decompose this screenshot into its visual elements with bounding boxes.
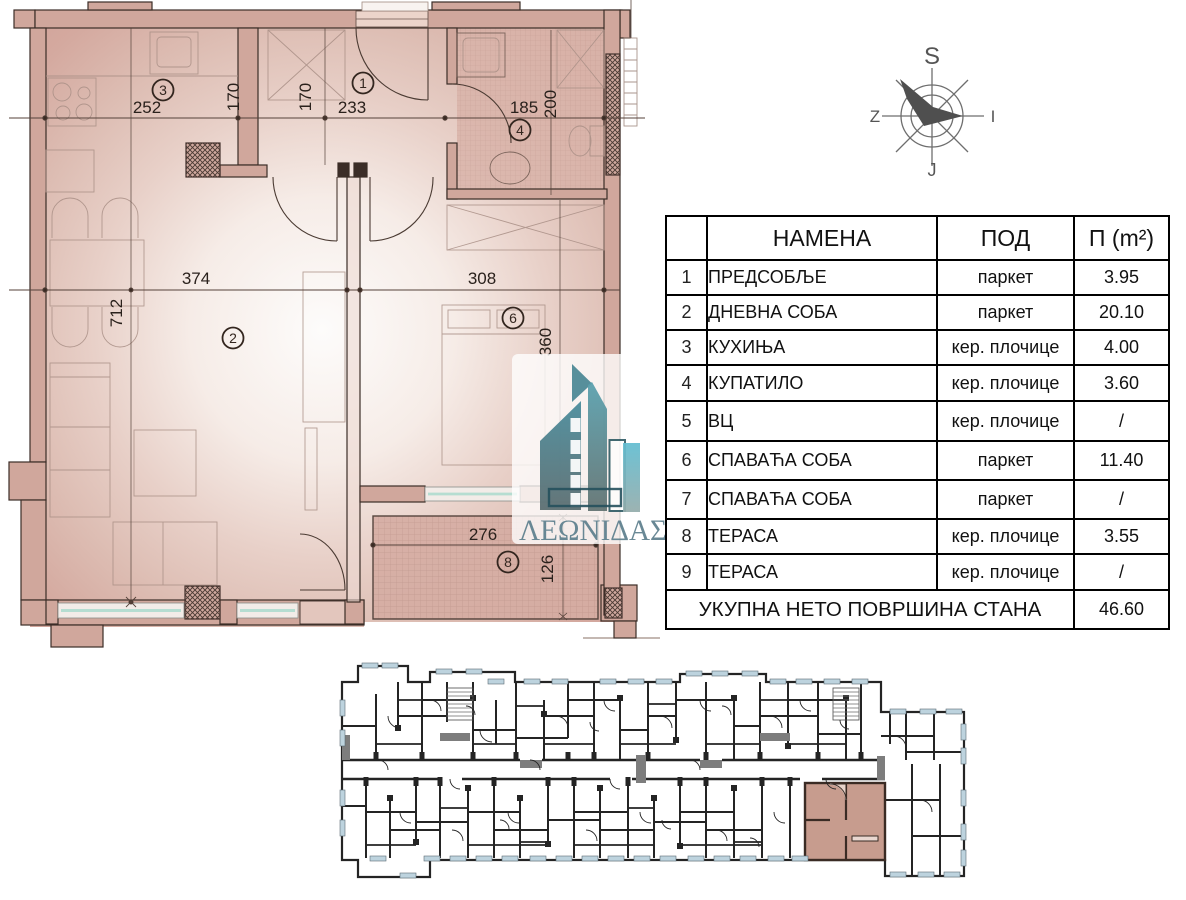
svg-text:185: 185 <box>510 98 538 117</box>
svg-text:I: I <box>991 107 996 126</box>
svg-text:8: 8 <box>504 554 512 570</box>
svg-text:6: 6 <box>509 310 517 326</box>
svg-text:3: 3 <box>159 82 167 98</box>
svg-text:252: 252 <box>133 98 161 117</box>
svg-text:200: 200 <box>541 90 560 118</box>
svg-text:233: 233 <box>338 98 366 117</box>
svg-text:374: 374 <box>182 269 210 288</box>
svg-text:1: 1 <box>359 75 367 91</box>
svg-text:360: 360 <box>536 328 555 356</box>
svg-text:J: J <box>928 160 937 180</box>
svg-text:2: 2 <box>229 330 237 346</box>
svg-text:Z: Z <box>870 107 880 126</box>
svg-text:308: 308 <box>468 269 496 288</box>
svg-text:170: 170 <box>296 83 315 111</box>
svg-text:4: 4 <box>516 122 524 138</box>
svg-text:712: 712 <box>107 299 126 327</box>
svg-text:S: S <box>924 43 940 70</box>
svg-text:170: 170 <box>224 83 243 111</box>
svg-text:276: 276 <box>469 525 497 544</box>
svg-text:126: 126 <box>538 555 557 583</box>
svg-text:ΛΕΩΝΙΔΑΣ: ΛΕΩΝΙΔΑΣ <box>519 514 667 547</box>
